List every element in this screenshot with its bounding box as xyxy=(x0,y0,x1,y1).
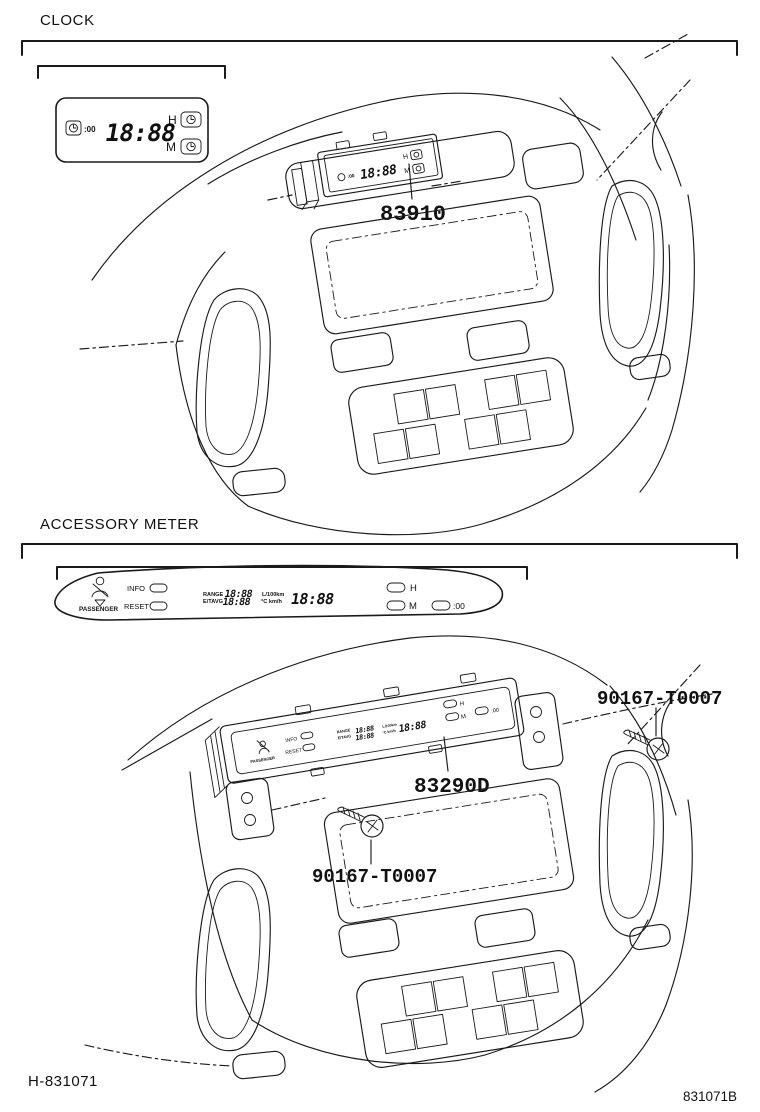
clock-minute-label: M xyxy=(166,140,176,154)
diagram-canvas: CLOCK :00 18:88 H M xyxy=(0,0,760,1112)
clock-section-bracket xyxy=(22,41,737,55)
info-button xyxy=(150,584,167,592)
mini-clock-set-icon xyxy=(337,173,345,181)
doc-number-right: 831071B xyxy=(683,1089,737,1104)
info-label: INFO xyxy=(127,584,145,593)
mini-passenger-icon xyxy=(257,739,269,753)
accessory-section-bracket xyxy=(22,544,737,558)
console-button-left xyxy=(330,332,394,374)
climate-panel xyxy=(346,355,575,476)
mini-minute-label: M xyxy=(461,714,467,721)
clock-hour-label: H xyxy=(168,113,177,127)
hour-button xyxy=(387,583,405,592)
screw-left xyxy=(338,807,383,837)
etavg-label: E/TAVG xyxy=(203,599,223,605)
reset-label: RESET xyxy=(124,602,149,611)
doc-number-left: H-831071 xyxy=(28,1073,98,1090)
clock-part-leader xyxy=(409,164,412,199)
mini-clock-time: 18:88 xyxy=(360,162,397,183)
accessory-dashboard-drawing: PASSENGER INFO RESET RANGE E/TAVG 18:88 … xyxy=(85,636,722,1092)
console-button-right xyxy=(466,320,530,362)
left-vent xyxy=(196,289,286,497)
clock-set-icon xyxy=(66,121,81,135)
mini-passenger-label: PASSENGER xyxy=(250,755,275,764)
nav-opening-lower xyxy=(323,777,576,925)
unit-bottom-label: °C km/h xyxy=(261,599,282,605)
passenger-label: PASSENGER xyxy=(79,606,119,613)
mini-info-label: INFO xyxy=(285,736,298,744)
passenger-seatbelt-icon xyxy=(92,577,108,606)
left-mounting-bracket xyxy=(225,777,275,840)
mini-clock-set-label: :00 xyxy=(347,173,355,180)
right-mounting-bracket xyxy=(514,692,564,771)
meter-part-leader xyxy=(444,737,448,771)
accessory-detail-bracket xyxy=(57,567,527,579)
minute-label: M xyxy=(409,601,417,612)
parts-diagram-page: CLOCK :00 18:88 H M xyxy=(0,0,760,1112)
mini-clock-hour-label: H xyxy=(403,154,409,162)
clock-detail-box: :00 18:88 H M xyxy=(56,98,208,162)
accessory-section-title: ACCESSORY METER xyxy=(40,516,199,533)
clock-detail-bracket xyxy=(38,66,225,78)
clock-dashboard-drawing: :00 18:88 H M 83910 xyxy=(80,34,694,535)
console-button-left-lower xyxy=(338,918,400,959)
right-shelf-opening xyxy=(521,142,585,191)
mini-reset-label: RESET xyxy=(285,748,302,757)
screw-right-part-number: 90167-T0007 xyxy=(597,688,722,710)
console-button-right-lower xyxy=(474,908,536,949)
reset-button xyxy=(150,602,167,610)
clock-hour-button-icon xyxy=(181,112,201,127)
meter-clock-display: 18:88 xyxy=(289,590,335,608)
mini-hour-label: H xyxy=(459,701,464,708)
mini-set-label: :00 xyxy=(491,707,500,714)
trip-value-bottom: 18:88 xyxy=(221,597,251,608)
accessory-meter-detail: PASSENGER INFO RESET RANGE E/TAVG 18:88 … xyxy=(55,566,503,620)
mini-etavg-label: E/TAVG xyxy=(337,734,351,740)
mini-unit-bottom: °C km/h xyxy=(382,729,396,735)
unit-top-label: L/100km xyxy=(262,592,284,598)
minute-button xyxy=(387,601,405,610)
mini-trip-bottom: 18:88 xyxy=(355,730,374,742)
meter-part-number: 83290D xyxy=(414,776,490,799)
mini-clock-value: 18:88 xyxy=(399,720,427,736)
set-button xyxy=(432,601,450,610)
set-label: :00 xyxy=(453,601,465,611)
right-vent-lower xyxy=(599,751,671,951)
range-label: RANGE xyxy=(203,592,223,598)
clock-minute-button-icon xyxy=(181,139,201,154)
hour-label: H xyxy=(410,583,417,594)
climate-panel-lower xyxy=(354,948,585,1069)
clock-section-title: CLOCK xyxy=(40,12,95,29)
screw-left-part-number: 90167-T0007 xyxy=(312,866,437,888)
clock-set-label: :00 xyxy=(84,125,96,134)
right-vent xyxy=(599,181,671,381)
